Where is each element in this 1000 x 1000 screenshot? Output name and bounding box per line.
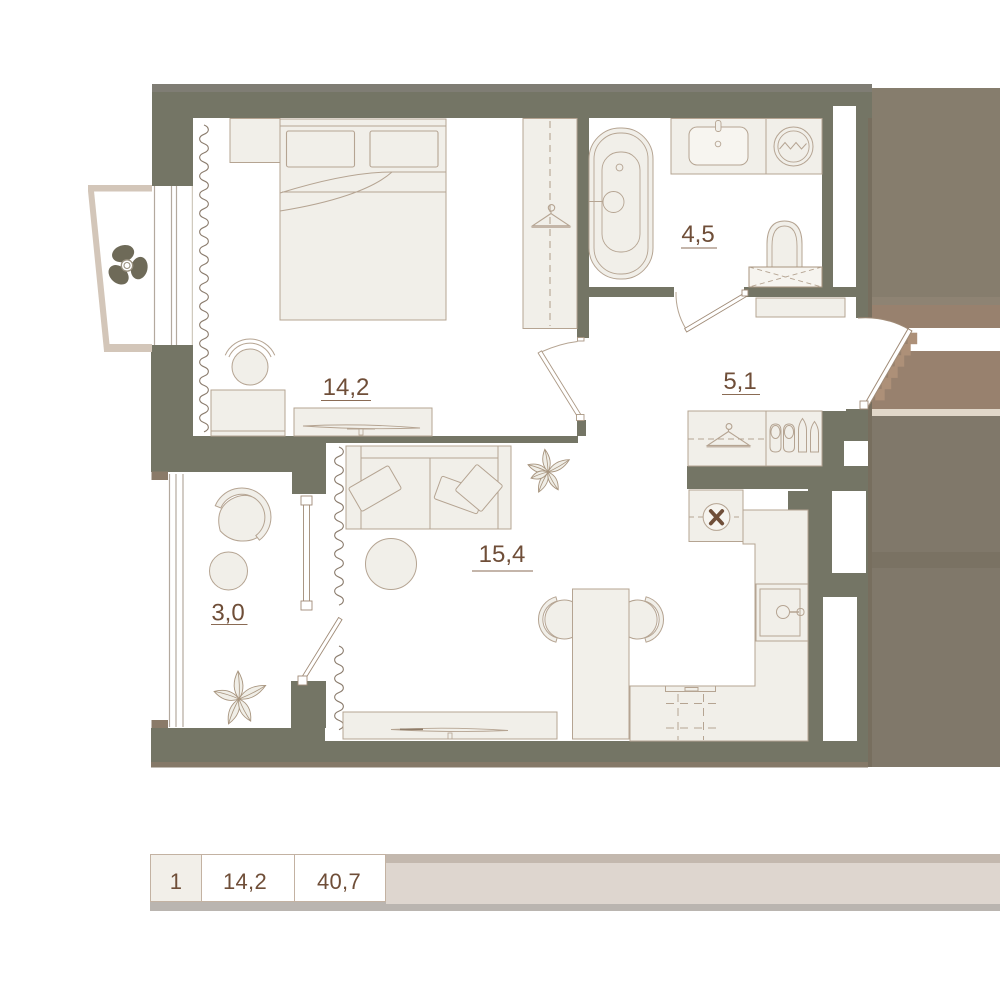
svg-text:4,5: 4,5 (681, 221, 714, 248)
svg-text:5,1: 5,1 (723, 368, 756, 395)
svg-text:3,0: 3,0 (211, 600, 244, 627)
svg-text:40,7: 40,7 (317, 869, 361, 894)
svg-text:1: 1 (170, 869, 183, 894)
svg-text:15,4: 15,4 (479, 541, 526, 568)
svg-text:14,2: 14,2 (223, 869, 267, 894)
svg-text:14,2: 14,2 (323, 374, 370, 401)
